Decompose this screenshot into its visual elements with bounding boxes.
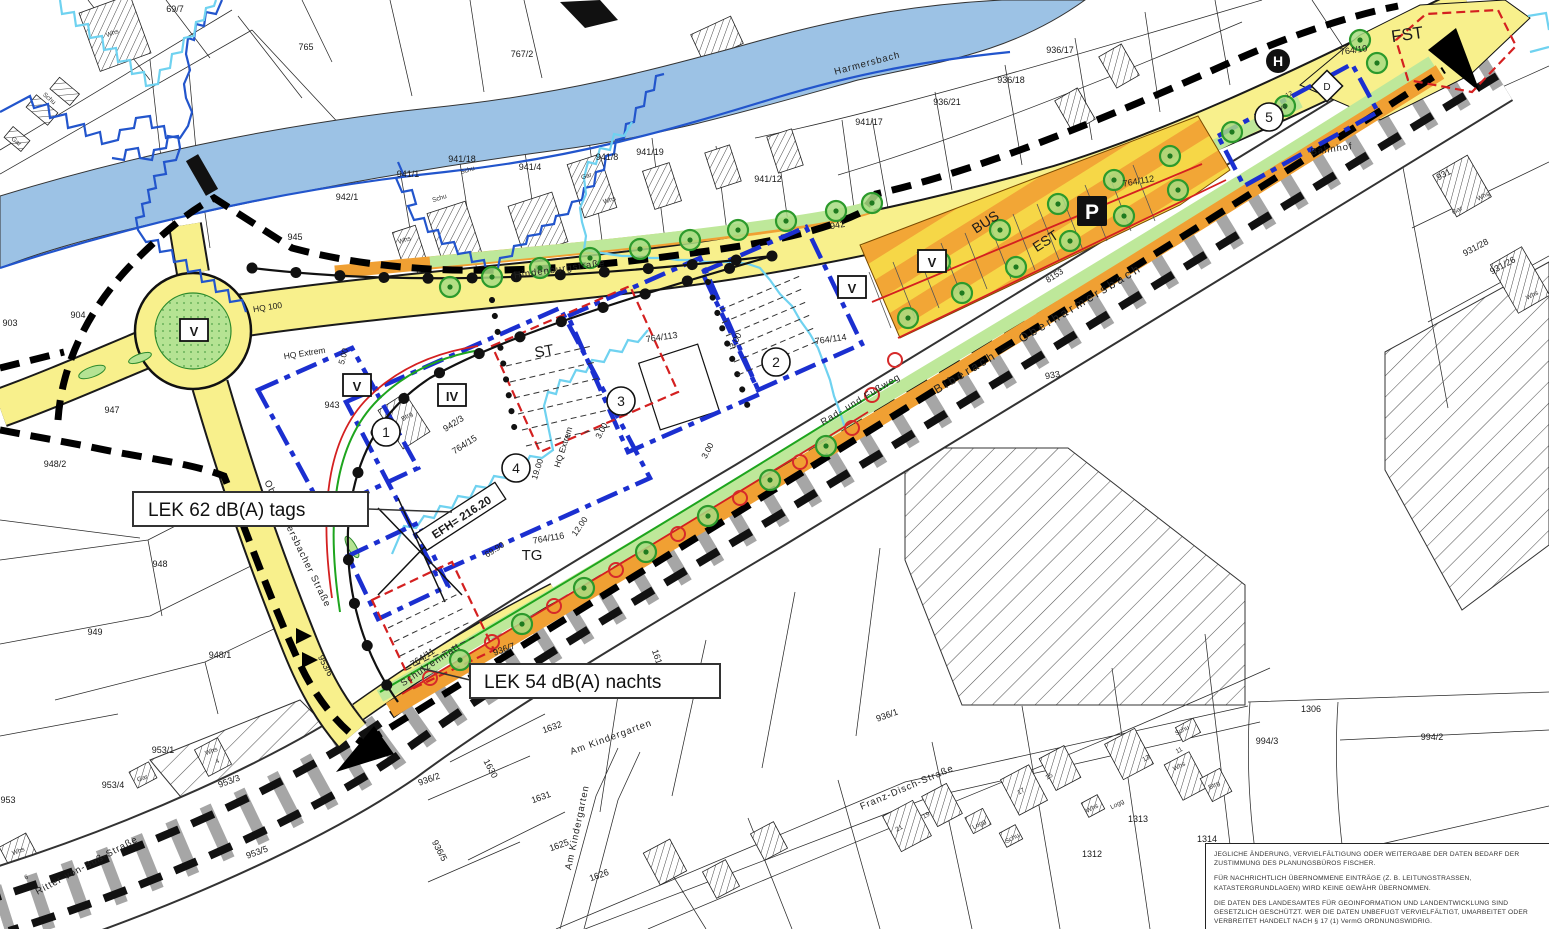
svg-text:5: 5 bbox=[1265, 109, 1273, 125]
parcel-number: 931/28 bbox=[1461, 236, 1490, 258]
svg-text:1: 1 bbox=[382, 424, 390, 440]
parcel-number: 1632 bbox=[541, 719, 563, 735]
zone-number: 1 bbox=[372, 418, 400, 446]
tree-icon bbox=[1160, 146, 1180, 166]
dimension-label: 69.90 bbox=[483, 539, 507, 559]
tree-icon bbox=[728, 220, 748, 240]
dimension-label: 5.00 bbox=[336, 347, 350, 366]
tree-icon bbox=[574, 578, 594, 598]
disclaimer-paragraph: DIE DATEN DES LANDESAMTES FÜR GEOINFORMA… bbox=[1214, 899, 1541, 927]
disclaimer-paragraph: JEGLICHE ÄNDERUNG, VERVIELFÄLTIGUNG ODER… bbox=[1214, 850, 1541, 868]
parcel-number: 1631 bbox=[530, 789, 552, 805]
parcel-number: 948/2 bbox=[44, 459, 67, 469]
svg-text:V: V bbox=[353, 379, 362, 394]
svg-text:4: 4 bbox=[512, 460, 520, 476]
zone-number: 3 bbox=[607, 387, 635, 415]
weir-icon bbox=[560, 0, 618, 28]
parcel-number: 941/4 bbox=[519, 162, 542, 172]
parcel-number: 936/17 bbox=[1046, 45, 1074, 55]
tree-icon bbox=[1222, 122, 1242, 142]
svg-text:D: D bbox=[1323, 82, 1330, 93]
building-label: Schu bbox=[459, 165, 476, 176]
parcel-number: 947 bbox=[104, 405, 119, 415]
parcel-number: 941/19 bbox=[636, 147, 664, 157]
tree-icon bbox=[512, 614, 532, 634]
zone-number: 2 bbox=[762, 348, 790, 376]
parcel-number: 945 bbox=[287, 232, 302, 242]
parking-letter: P bbox=[1085, 201, 1099, 224]
parcel-number: 1312 bbox=[1082, 849, 1102, 859]
storeys-box: V bbox=[343, 374, 371, 396]
building-label: Logg bbox=[1109, 798, 1125, 811]
parcel-number: 941/18 bbox=[448, 154, 476, 164]
parcel-number: 994/2 bbox=[1421, 732, 1444, 742]
parcel-number: 994/3 bbox=[1256, 736, 1279, 746]
tree-icon bbox=[1367, 53, 1387, 73]
tree-icon bbox=[776, 211, 796, 231]
parcel-number: 942/1 bbox=[336, 192, 359, 202]
parcel-number: 69/7 bbox=[166, 4, 184, 14]
tree-icon bbox=[1104, 170, 1124, 190]
tree-icon bbox=[952, 283, 972, 303]
storeys-box: V bbox=[918, 250, 946, 272]
parcel-number: 767/2 bbox=[511, 49, 534, 59]
parcel-number: 764/15 bbox=[450, 433, 479, 456]
parcel-number: 765 bbox=[298, 42, 313, 52]
tree-icon bbox=[636, 542, 656, 562]
building-label: Schu bbox=[431, 193, 448, 204]
parcel-number: 1630 bbox=[482, 757, 500, 779]
zone-number: 4 bbox=[502, 454, 530, 482]
parcel-number: 941/17 bbox=[855, 117, 883, 127]
parcel-number: 936/5 bbox=[430, 838, 449, 863]
tree-icon bbox=[440, 277, 460, 297]
parcel-number: 936/18 bbox=[997, 75, 1025, 85]
dimension-label: HQ Extrem bbox=[283, 345, 326, 361]
parcel-number: 1313 bbox=[1128, 814, 1148, 824]
tree-icon bbox=[898, 308, 918, 328]
tree-icon bbox=[816, 436, 836, 456]
disclaimer-paragraph: FÜR NACHRICHTLICH ÜBERNOMMENE EINTRÄGE (… bbox=[1214, 874, 1541, 892]
parcel-number: 949 bbox=[87, 627, 102, 637]
disclaimer-box: JEGLICHE ÄNDERUNG, VERVIELFÄLTIGUNG ODER… bbox=[1205, 843, 1549, 929]
parcel-number: 941/12 bbox=[754, 174, 782, 184]
svg-text:IV: IV bbox=[446, 389, 459, 404]
tree-icon bbox=[1060, 231, 1080, 251]
parcel-number: 936/1 bbox=[875, 707, 900, 724]
parcel-number: 904 bbox=[70, 310, 85, 320]
storeys-box: V bbox=[838, 276, 866, 298]
tg-label: TG bbox=[522, 547, 543, 564]
svg-text:3: 3 bbox=[617, 393, 625, 409]
tree-icon bbox=[760, 470, 780, 490]
parcel-number: 948 bbox=[152, 559, 167, 569]
storeys-box: IV bbox=[438, 384, 466, 406]
dimension-label: 12.00 bbox=[569, 514, 590, 537]
storeys-box: V bbox=[180, 319, 208, 341]
parcel-number: 764/114 bbox=[814, 332, 847, 346]
st-label: ST bbox=[533, 342, 555, 362]
dimension-label: 3.00 bbox=[699, 441, 716, 461]
parcel-number: 953 bbox=[0, 795, 15, 805]
tree-icon bbox=[862, 193, 882, 213]
parcel-number: 1306 bbox=[1301, 704, 1321, 714]
dimension-label: HQ Extrem bbox=[552, 426, 574, 469]
parcel-number: 903 bbox=[2, 318, 17, 328]
svg-text:V: V bbox=[928, 255, 937, 270]
zone-number: 5 bbox=[1255, 103, 1283, 131]
svg-text:V: V bbox=[190, 324, 199, 339]
parcel-number: 1626 bbox=[588, 867, 610, 883]
tree-icon bbox=[1048, 194, 1068, 214]
parcel-number: 941/1 bbox=[397, 169, 420, 179]
bus-stop-letter: H bbox=[1273, 53, 1283, 69]
svg-text:2: 2 bbox=[772, 354, 780, 370]
parcel-number: 936/21 bbox=[933, 97, 961, 107]
parcel-number: 953/4 bbox=[102, 780, 125, 790]
map-canvas: Hindenburgstraße Harmersbach Biberach — … bbox=[0, 0, 1549, 929]
parcel-number: 942/3 bbox=[441, 413, 465, 434]
parcel-number: 953/1 bbox=[152, 745, 175, 755]
parcel-number: 933 bbox=[1044, 369, 1061, 381]
parcel-number: 764/116 bbox=[532, 530, 565, 545]
tree-icon bbox=[482, 267, 502, 287]
building-label: 11 bbox=[1175, 746, 1185, 756]
parcel-number: 948/1 bbox=[209, 650, 232, 660]
svg-text:LEK 62 dB(A) tags: LEK 62 dB(A) tags bbox=[148, 500, 305, 521]
tree-icon bbox=[1006, 257, 1026, 277]
svg-text:V: V bbox=[848, 281, 857, 296]
svg-text:LEK 54 dB(A) nachts: LEK 54 dB(A) nachts bbox=[484, 672, 661, 693]
kindergarten-label-1: Am Kindergarten bbox=[569, 718, 654, 758]
control-point-ring bbox=[888, 353, 902, 367]
tree-icon bbox=[1114, 206, 1134, 226]
tree-icon bbox=[630, 239, 650, 259]
development-plan-map: Hindenburgstraße Harmersbach Biberach — … bbox=[0, 0, 1549, 929]
tree-icon bbox=[698, 506, 718, 526]
dimension-label: 19.00 bbox=[529, 457, 545, 481]
tree-icon bbox=[1168, 180, 1188, 200]
parcel-number: 943 bbox=[324, 400, 339, 410]
tree-icon bbox=[680, 230, 700, 250]
parcel-number: 941/8 bbox=[596, 152, 619, 162]
